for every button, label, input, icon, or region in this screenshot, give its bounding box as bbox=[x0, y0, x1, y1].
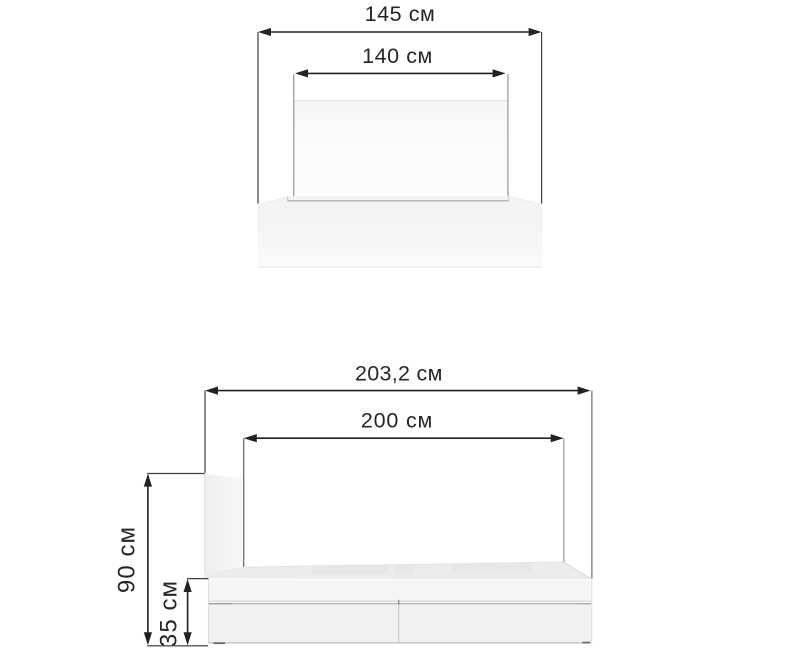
svg-text:140 см: 140 см bbox=[362, 44, 433, 68]
svg-text:203,2 см: 203,2 см bbox=[355, 361, 443, 385]
svg-text:90 см: 90 см bbox=[114, 526, 141, 593]
svg-text:200 см: 200 см bbox=[361, 408, 433, 432]
svg-text:145 см: 145 см bbox=[365, 2, 436, 26]
svg-text:35 см: 35 см bbox=[156, 580, 183, 647]
